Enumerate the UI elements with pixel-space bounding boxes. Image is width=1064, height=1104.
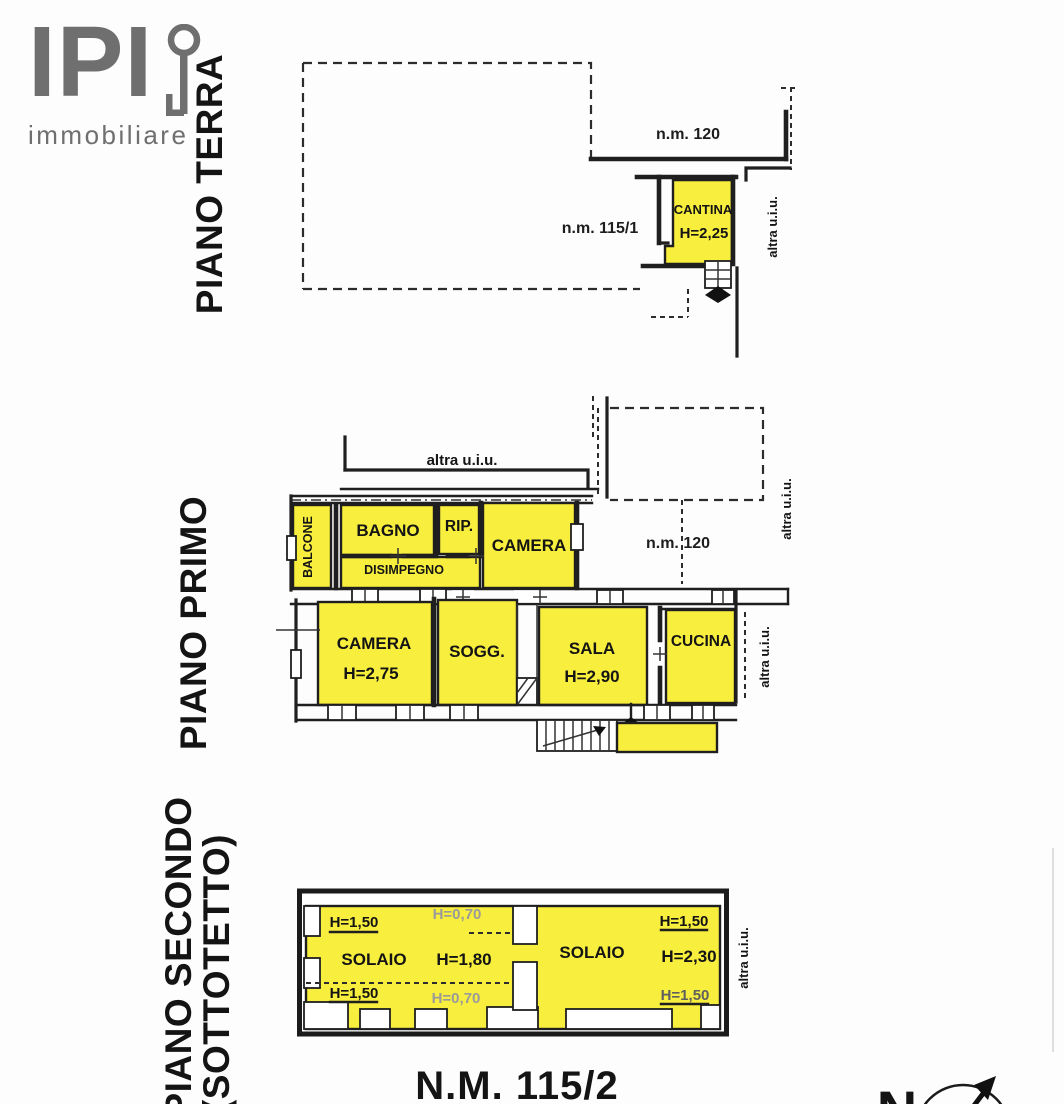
height-label-right-top: H=1,50 xyxy=(660,913,709,930)
room-height-sala: H=2,90 xyxy=(564,667,619,686)
floor-plan-piano-terra: n.m. 120 n.m. 115/1 CANTINA H=2,25 altra… xyxy=(303,63,799,356)
height-label-center-top: H=0,70 xyxy=(433,906,482,923)
floor-plan-piano-primo: altra u.i.u. n.m. 120 altra u.i.u. altra… xyxy=(276,396,794,752)
height-label-left-bottom: H=1,50 xyxy=(330,985,379,1002)
room-label-disimpegno: DISIMPEGNO xyxy=(364,563,444,577)
floor-label-piano-secondo: PIANO SECONDO xyxy=(158,796,199,1104)
scanned-floorplan-page: IPI immobiliare PIANO TERRA PIANO PRIMO … xyxy=(0,0,1064,1104)
height-label-left-top: H=1,50 xyxy=(330,914,379,931)
annotation-altra-uiu-top: altra u.i.u. xyxy=(427,452,498,469)
annotation-altra-uiu-terra: altra u.i.u. xyxy=(765,196,780,257)
floor-label-sottotetto: (SOTTOTETTO) xyxy=(196,834,237,1104)
annotation-altra-uiu-right-lower: altra u.i.u. xyxy=(757,626,772,687)
room-label-sala: SALA xyxy=(569,639,615,658)
room-label-sogg: SOGG. xyxy=(449,642,505,661)
room-label-bagno: BAGNO xyxy=(356,521,419,540)
annotation-altra-uiu-right-upper: altra u.i.u. xyxy=(779,478,794,539)
room-label-solaio-left: SOLAIO xyxy=(341,950,406,969)
height-label-right-bottom: H=1,50 xyxy=(661,987,710,1004)
annotation-altra-uiu-secondo: altra u.i.u. xyxy=(736,927,751,988)
floor-label-piano-terra: PIANO TERRA xyxy=(189,54,230,314)
floor-plan-piano-secondo: H=1,50 H=0,70 SOLAIO H=1,80 H=1,50 H=0,7… xyxy=(300,891,752,1034)
room-label-balcone: BALCONE xyxy=(301,516,315,578)
north-compass-icon: N xyxy=(877,1076,1010,1104)
room-label-rip: RIP. xyxy=(445,518,473,535)
stairs-symbol-terra xyxy=(705,261,731,288)
height-label-solaio-right: H=2,30 xyxy=(661,947,716,966)
room-height-cantina: H=2,25 xyxy=(680,225,729,242)
room-label-solaio-right: SOLAIO xyxy=(559,943,624,962)
annotation-nm-120-primo: n.m. 120 xyxy=(646,535,710,552)
height-label-solaio-left: H=1,80 xyxy=(436,950,491,969)
room-label-cantina: CANTINA xyxy=(674,202,733,217)
height-label-center-bottom: H=0,70 xyxy=(432,990,481,1007)
room-height-camera: H=2,75 xyxy=(343,664,398,683)
room-label-camera-top: CAMERA xyxy=(492,536,567,555)
north-letter: N xyxy=(877,1079,917,1104)
room-label-camera: CAMERA xyxy=(337,634,412,653)
floorplan-drawing: PIANO TERRA PIANO PRIMO PIANO SECONDO (S… xyxy=(0,0,1064,1104)
stairs-symbol-primo xyxy=(537,720,617,751)
room-label-cucina: CUCINA xyxy=(671,633,731,650)
annotation-nm-115-1: n.m. 115/1 xyxy=(562,220,639,237)
annotation-nm-120-terra: n.m. 120 xyxy=(656,126,720,143)
floor-label-piano-primo: PIANO PRIMO xyxy=(173,496,214,750)
parcel-number: N.M. 115/2 xyxy=(415,1064,618,1104)
